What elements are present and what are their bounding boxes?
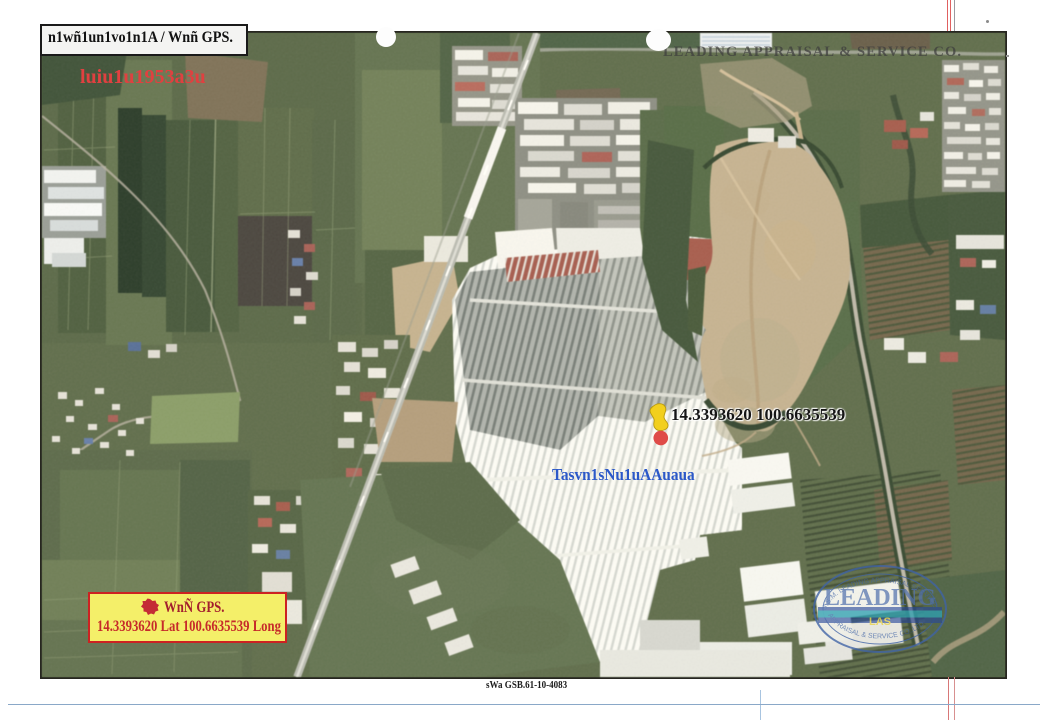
svg-text:LAS: LAS bbox=[869, 616, 891, 628]
